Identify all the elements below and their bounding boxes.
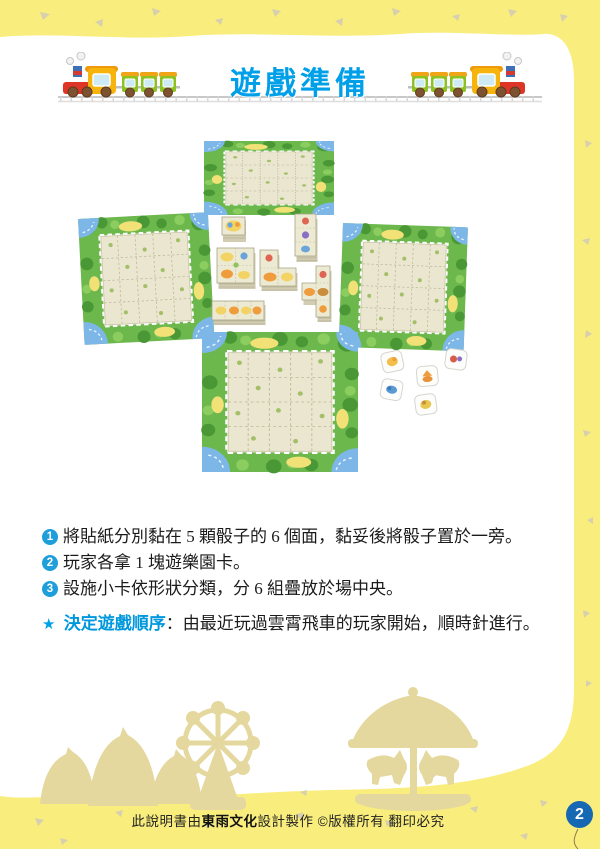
card-stack-i4 bbox=[212, 301, 266, 325]
instruction-step: 3 設施小卡依形狀分類，分 6 組疊放於場中央。 bbox=[42, 576, 562, 602]
step-number-badge: 3 bbox=[42, 581, 58, 597]
instruction-step: 2 玩家各拿 1 塊遊樂園卡。 bbox=[42, 550, 562, 576]
die-icon bbox=[380, 350, 405, 374]
instruction-step: 1 將貼紙分別黏在 5 顆骰子的 6 個面，黏妥後將骰子置於一旁。 bbox=[42, 524, 562, 550]
note-label: 決定遊戲順序 bbox=[64, 614, 166, 633]
footer-suffix: 設計製作 ©版權所有 翻印必究 bbox=[258, 814, 445, 829]
park-board-bottom bbox=[201, 331, 359, 473]
setup-instructions: 1 將貼紙分別黏在 5 顆骰子的 6 個面，黏妥後將骰子置於一旁。 2 玩家各拿… bbox=[42, 524, 562, 602]
card-stack-l bbox=[260, 250, 298, 291]
die-icon bbox=[414, 393, 438, 416]
instruction-text: 玩家各拿 1 塊遊樂園卡。 bbox=[63, 550, 250, 576]
footer-prefix: 此說明書由 bbox=[132, 814, 202, 829]
park-board-left bbox=[77, 212, 215, 347]
park-board-top bbox=[203, 141, 334, 216]
instruction-text: 設施小卡依形狀分類，分 6 組疊放於場中央。 bbox=[63, 576, 403, 602]
setup-illustration bbox=[40, 135, 560, 480]
step-number-badge: 1 bbox=[42, 529, 58, 545]
dice-group bbox=[380, 348, 468, 416]
step-number-badge: 2 bbox=[42, 555, 58, 571]
page-title: 遊戲準備 bbox=[0, 58, 600, 103]
page-number-balloon: 2 bbox=[566, 801, 593, 828]
star-icon: ★ bbox=[42, 616, 55, 633]
instruction-text: 將貼紙分別黏在 5 顆骰子的 6 個面，黏妥後將骰子置於一旁。 bbox=[63, 524, 522, 550]
card-stack-t bbox=[302, 266, 332, 322]
note-text: 由最近玩過雲霄飛車的玩家開始，順時針進行。 bbox=[183, 614, 540, 633]
card-stack-i3 bbox=[295, 214, 318, 262]
publisher-name: 東雨文化 bbox=[202, 814, 258, 829]
die-icon bbox=[444, 348, 468, 371]
note-colon: ： bbox=[166, 614, 183, 633]
copyright-line: 此說明書由東雨文化設計製作 ©版權所有 翻印必究 bbox=[0, 810, 576, 830]
die-icon bbox=[380, 378, 404, 401]
card-stack-2x2 bbox=[217, 248, 256, 289]
die-icon bbox=[416, 365, 439, 387]
card-stack-single bbox=[222, 217, 246, 242]
turn-order-note: ★ 決定遊戲順序：由最近玩過雲霄飛車的玩家開始，順時針進行。 bbox=[42, 612, 562, 637]
